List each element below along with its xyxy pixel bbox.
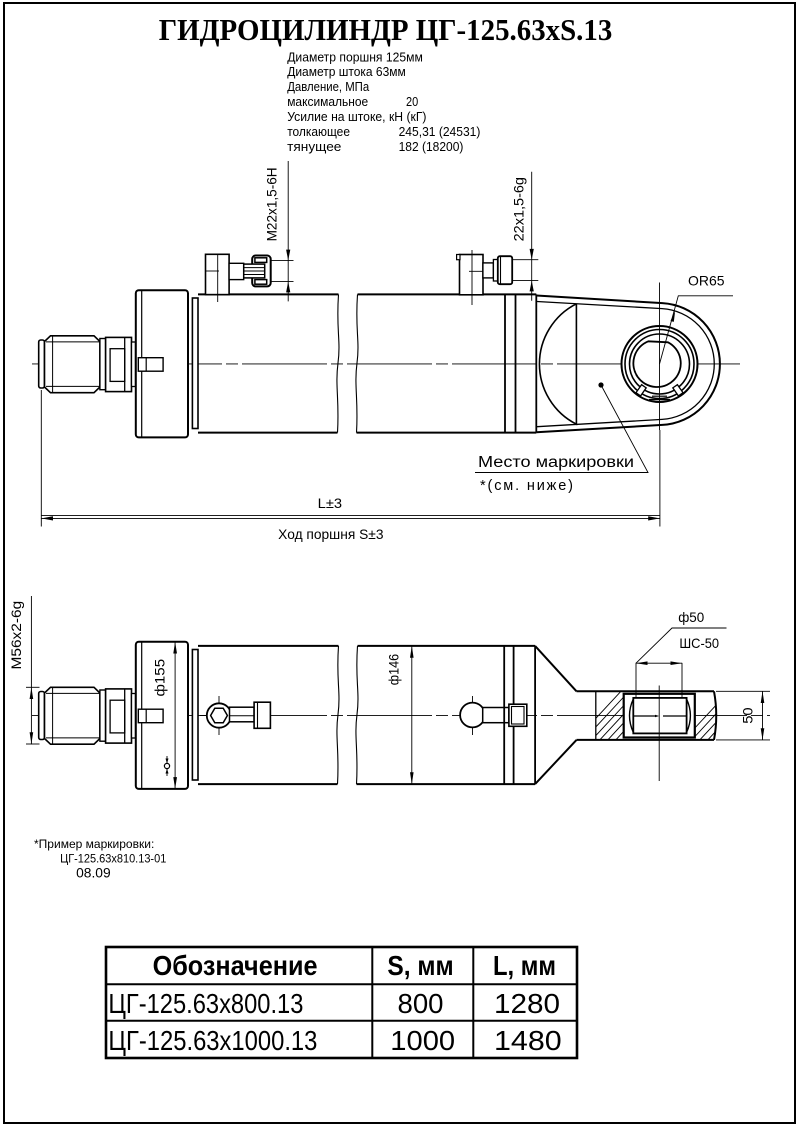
svg-text:08.09: 08.09 bbox=[76, 866, 111, 881]
svg-text:толкающее: толкающее bbox=[287, 125, 350, 139]
svg-text:22х1,5-6g: 22х1,5-6g bbox=[511, 177, 527, 241]
svg-text:Ход поршня S±3: Ход поршня S±3 bbox=[278, 527, 383, 542]
svg-text:Диаметр штока 63мм: Диаметр штока 63мм bbox=[287, 65, 406, 79]
svg-text:Место маркировки: Место маркировки bbox=[478, 454, 634, 471]
svg-text:Давление, МПа: Давление, МПа bbox=[287, 80, 369, 94]
svg-text:Обозначение: Обозначение bbox=[153, 950, 318, 981]
svg-text:ЦГ-125.63х1000.13: ЦГ-125.63х1000.13 bbox=[108, 1025, 317, 1056]
svg-text:ф155: ф155 bbox=[152, 659, 168, 697]
svg-text:Диаметр поршня 125мм: Диаметр поршня 125мм bbox=[287, 50, 423, 64]
svg-text:М22х1,5-6Н: М22х1,5-6Н bbox=[264, 167, 280, 241]
svg-text:ЦГ-125.63х800.13: ЦГ-125.63х800.13 bbox=[108, 988, 303, 1019]
svg-text:ф50: ф50 bbox=[678, 609, 704, 625]
svg-text:М56х2-6g: М56х2-6g bbox=[8, 601, 24, 670]
svg-text:*Пример маркировки:: *Пример маркировки: bbox=[34, 837, 154, 851]
svg-text:20: 20 bbox=[406, 95, 418, 109]
svg-text:максимальное: максимальное bbox=[287, 95, 368, 109]
svg-text:ГИДРОЦИЛИНДР ЦГ-125.63хS.13: ГИДРОЦИЛИНДР ЦГ-125.63хS.13 bbox=[159, 12, 613, 47]
svg-text:ОR65: ОR65 bbox=[688, 273, 725, 289]
svg-text:S, мм: S, мм bbox=[387, 950, 453, 981]
svg-text:800: 800 bbox=[398, 988, 444, 1019]
svg-text:182 (18200): 182 (18200) bbox=[399, 140, 464, 154]
svg-text:ф146: ф146 bbox=[386, 654, 402, 685]
svg-text:тянущее: тянущее bbox=[287, 140, 341, 154]
svg-text:L±3: L±3 bbox=[318, 496, 342, 511]
svg-text:50: 50 bbox=[740, 707, 756, 724]
svg-text:ШС-50: ШС-50 bbox=[679, 635, 719, 651]
svg-text:245,31 (24531): 245,31 (24531) bbox=[399, 125, 481, 139]
svg-text:Усилие на штоке, кН (кГ): Усилие на штоке, кН (кГ) bbox=[287, 110, 426, 124]
svg-text:1000: 1000 bbox=[390, 1025, 455, 1056]
svg-text:1280: 1280 bbox=[494, 988, 560, 1019]
svg-text:ЦГ-125.63х810.13-01: ЦГ-125.63х810.13-01 bbox=[60, 852, 166, 866]
svg-text:1480: 1480 bbox=[494, 1025, 562, 1056]
svg-text:*(см. ниже): *(см. ниже) bbox=[480, 478, 573, 494]
svg-text:L, мм: L, мм bbox=[493, 950, 556, 981]
